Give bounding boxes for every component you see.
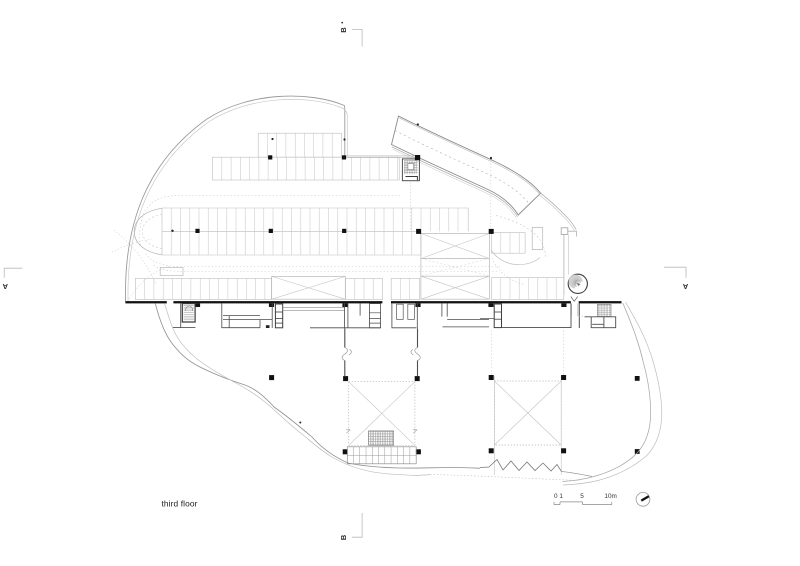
svg-text:0 1: 0 1 — [554, 493, 563, 500]
svg-text:B: B — [339, 534, 348, 540]
svg-text:A: A — [2, 282, 8, 291]
svg-text:B: B — [339, 27, 348, 33]
svg-text:5: 5 — [580, 493, 584, 500]
svg-text:third floor: third floor — [162, 498, 198, 508]
svg-text:10m: 10m — [604, 493, 616, 500]
svg-text:A: A — [682, 282, 688, 291]
